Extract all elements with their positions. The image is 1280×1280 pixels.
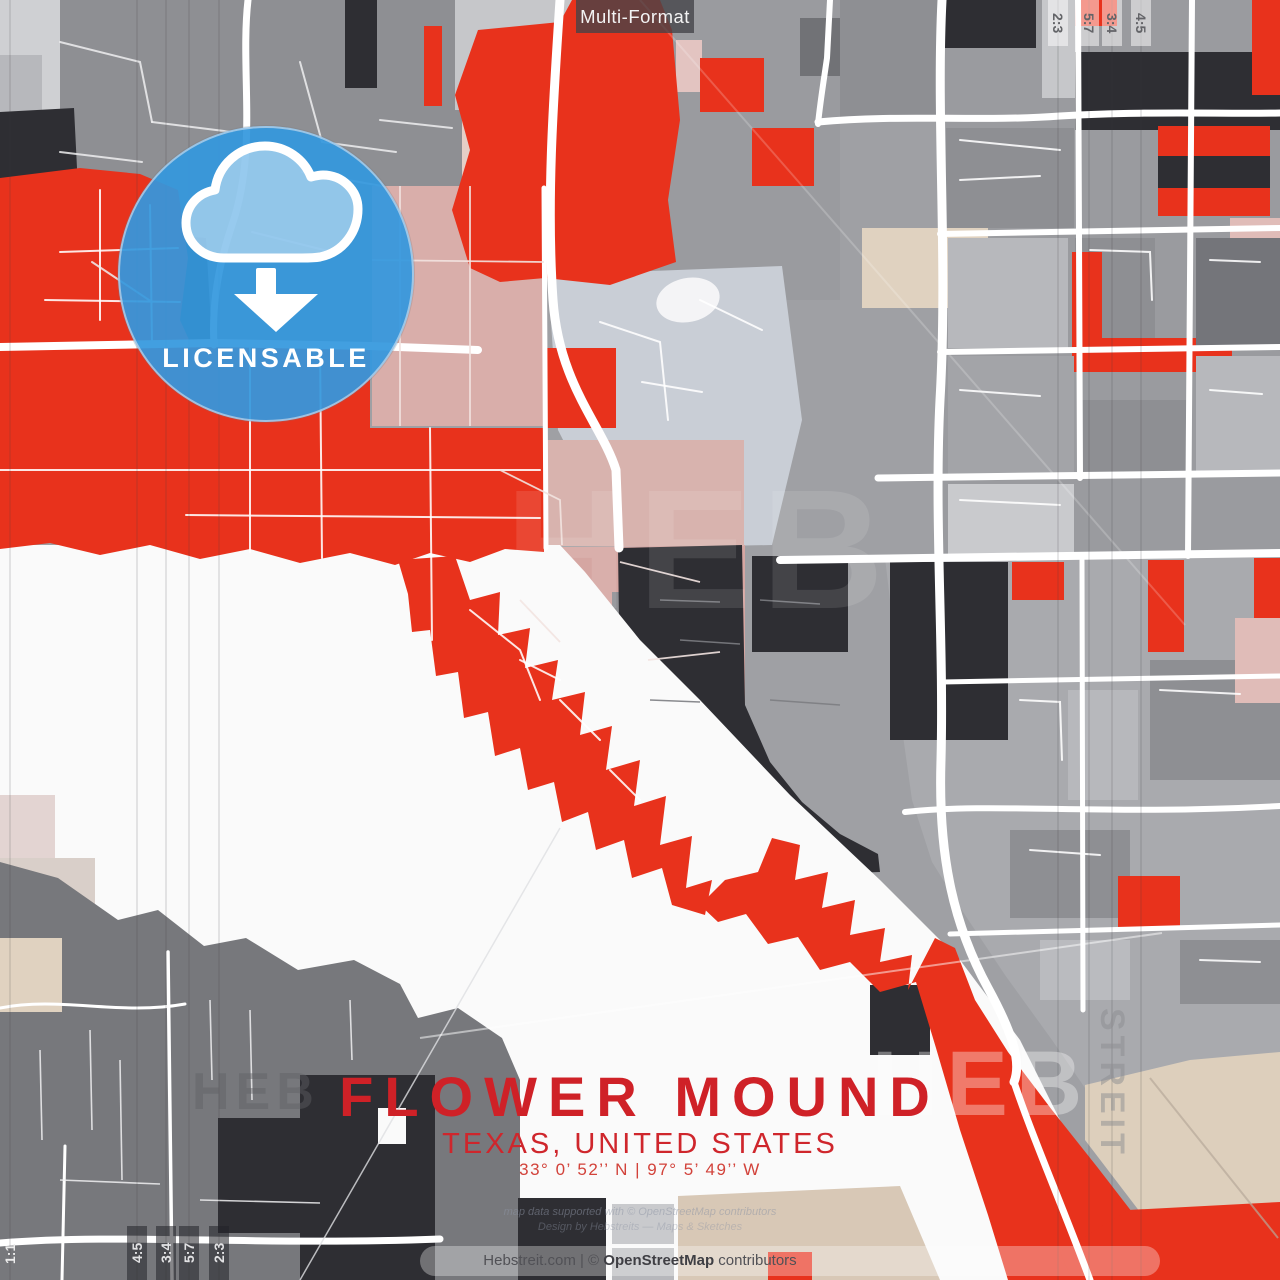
poster-title: FLOWER MOUND xyxy=(0,1064,1280,1129)
fine-print-line2: Design by Hebstreits — Maps & Sketches xyxy=(0,1221,1280,1233)
footer-suffix: contributors xyxy=(714,1252,797,1269)
format-marker-top-2-3: 2:3 xyxy=(1048,0,1068,46)
format-marker-top-3-4: 3:4 xyxy=(1102,0,1122,46)
licensable-badge[interactable]: LICENSABLE xyxy=(118,126,414,422)
footer-site: Hebstreit.com | © xyxy=(483,1252,603,1269)
watermark-heb-center: HEB xyxy=(505,452,894,648)
footer-osm: OpenStreetMap xyxy=(603,1252,714,1269)
poster-coordinates: 33° 0’ 52’’ N | 97° 5’ 49’’ W xyxy=(0,1160,1280,1180)
format-marker-top-4-5: 4:5 xyxy=(1131,0,1151,46)
cloud-download-icon xyxy=(120,128,412,420)
format-marker-top-5-7: 5:7 xyxy=(1079,0,1099,46)
fine-print-line1: map data supported with © OpenStreetMap … xyxy=(0,1206,1280,1218)
footer-credit: Hebstreit.com | © OpenStreetMap contribu… xyxy=(0,1252,1280,1269)
map-poster: HEB HEB HEB STREIT Multi-Format LICENSAB… xyxy=(0,0,1280,1280)
multi-format-chip: Multi-Format xyxy=(576,0,694,33)
poster-subtitle: TEXAS, UNITED STATES xyxy=(0,1128,1280,1161)
licensable-label: LICENSABLE xyxy=(120,343,412,374)
